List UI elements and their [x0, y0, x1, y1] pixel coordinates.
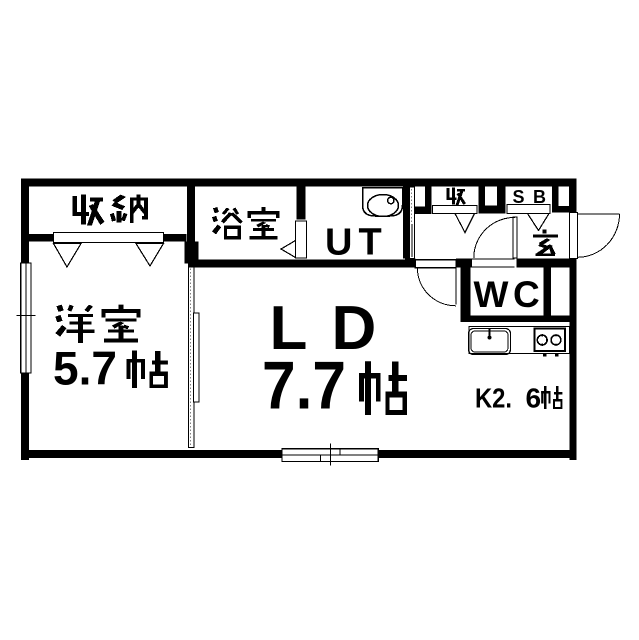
svg-text:K2.: K2. — [475, 383, 512, 414]
svg-text:T: T — [359, 222, 382, 264]
svg-text:7.7: 7.7 — [262, 348, 346, 424]
svg-text:6: 6 — [526, 383, 542, 414]
svg-text:5.7: 5.7 — [53, 342, 117, 395]
svg-text:U: U — [325, 222, 352, 264]
svg-text:C: C — [513, 274, 540, 315]
svg-text:S: S — [513, 187, 525, 207]
svg-text:W: W — [474, 274, 509, 315]
svg-text:B: B — [533, 187, 546, 207]
